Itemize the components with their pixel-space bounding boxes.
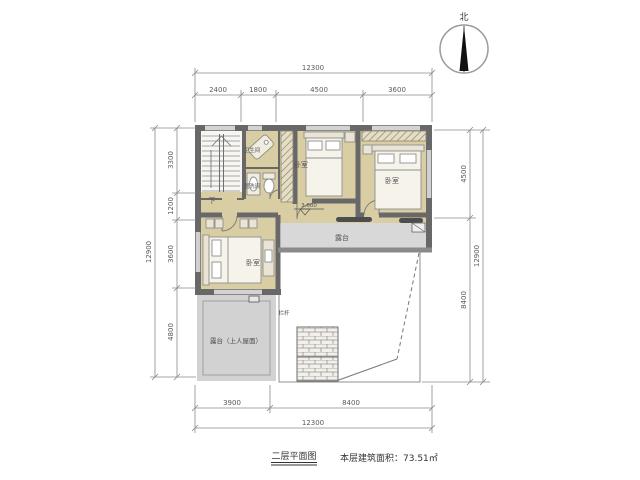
caption-underline bbox=[271, 463, 317, 466]
window-top-bedroom2 bbox=[372, 126, 420, 131]
window-bottom-bedroom3 bbox=[214, 290, 262, 295]
dim-bottom-seg2: 8400 bbox=[342, 399, 360, 407]
dim-top-overall: 12300 bbox=[302, 64, 324, 72]
window-top-stair bbox=[205, 126, 235, 131]
north-arrow: 北 bbox=[440, 12, 488, 73]
dim-top-seg4: 3600 bbox=[388, 86, 406, 94]
chimney bbox=[297, 327, 338, 381]
dim-left-overall: 12900 bbox=[145, 241, 153, 263]
dim-bottom-seg1: 3900 bbox=[223, 399, 241, 407]
dimension-bottom: 3900 8400 12300 bbox=[192, 385, 435, 433]
dimension-top: 12300 2400 1800 4500 3600 bbox=[192, 64, 435, 122]
window-top-bedroom1 bbox=[306, 126, 350, 131]
dim-top-seg1: 2400 bbox=[209, 86, 227, 94]
roof-drain bbox=[249, 296, 259, 302]
dim-top-seg3: 4500 bbox=[310, 86, 328, 94]
railing-bar bbox=[399, 218, 423, 223]
desk-icon bbox=[263, 240, 274, 276]
dim-left-seg4: 4800 bbox=[167, 323, 175, 341]
level-value: 3.600 bbox=[301, 203, 317, 209]
dim-top-seg2: 1800 bbox=[249, 86, 267, 94]
dim-bottom-overall: 12300 bbox=[302, 419, 324, 427]
ac-unit-icon bbox=[412, 223, 425, 232]
room-label-bedroom3: 卧室 bbox=[246, 258, 260, 267]
room-label-bathroom: 卫生间 bbox=[244, 146, 261, 154]
terrace-floor bbox=[281, 223, 427, 250]
toilet-icon bbox=[263, 173, 275, 193]
dim-left-seg1: 3300 bbox=[167, 151, 175, 169]
compass-needle-icon bbox=[460, 26, 469, 71]
caption-area: 本层建筑面积：73.51㎡ bbox=[340, 452, 438, 464]
window-left-bedroom3 bbox=[196, 232, 201, 272]
window-top-bath bbox=[248, 126, 262, 131]
room-label-washroom: 盥洗间 bbox=[244, 182, 261, 190]
floor-plan-canvas: 3.600 卧室 卧室 卧室 露台 露台（上人屋面） 卫生间 盥洗间 下 栏杆 … bbox=[0, 0, 640, 480]
room-label-terrace: 露台 bbox=[335, 233, 349, 242]
dim-right-seg2: 8400 bbox=[460, 291, 468, 309]
railing-label: 栏杆 bbox=[278, 309, 290, 317]
nightstand-icon bbox=[345, 132, 355, 142]
room-label-bedroom1: 卧室 bbox=[294, 160, 308, 169]
room-label-roof-terrace: 露台（上人屋面） bbox=[210, 336, 262, 345]
floor-plan-page: 3.600 卧室 卧室 卧室 露台 露台（上人屋面） 卫生间 盥洗间 下 栏杆 … bbox=[0, 0, 640, 480]
window-right-bedroom2 bbox=[427, 150, 432, 198]
caption: 二层平面图 本层建筑面积：73.51㎡ bbox=[271, 451, 438, 465]
shaft-strip bbox=[281, 131, 293, 202]
dimension-left: 12900 3300 1200 3600 4800 bbox=[145, 125, 196, 380]
dim-right-seg1: 4500 bbox=[460, 165, 468, 183]
dimension-right: 4500 8400 12900 bbox=[422, 127, 490, 385]
north-label: 北 bbox=[459, 12, 468, 23]
room-label-bedroom2: 卧室 bbox=[385, 176, 399, 185]
planter-strip bbox=[362, 131, 426, 141]
nightstand-icon bbox=[363, 145, 372, 154]
dim-right-overall: 12900 bbox=[473, 245, 481, 267]
stair-down-label: 下 bbox=[209, 197, 216, 205]
dim-left-seg3: 3600 bbox=[167, 245, 175, 263]
dim-left-seg2: 1200 bbox=[167, 197, 175, 215]
caption-title: 二层平面图 bbox=[271, 451, 316, 462]
railing-bar bbox=[336, 217, 372, 222]
